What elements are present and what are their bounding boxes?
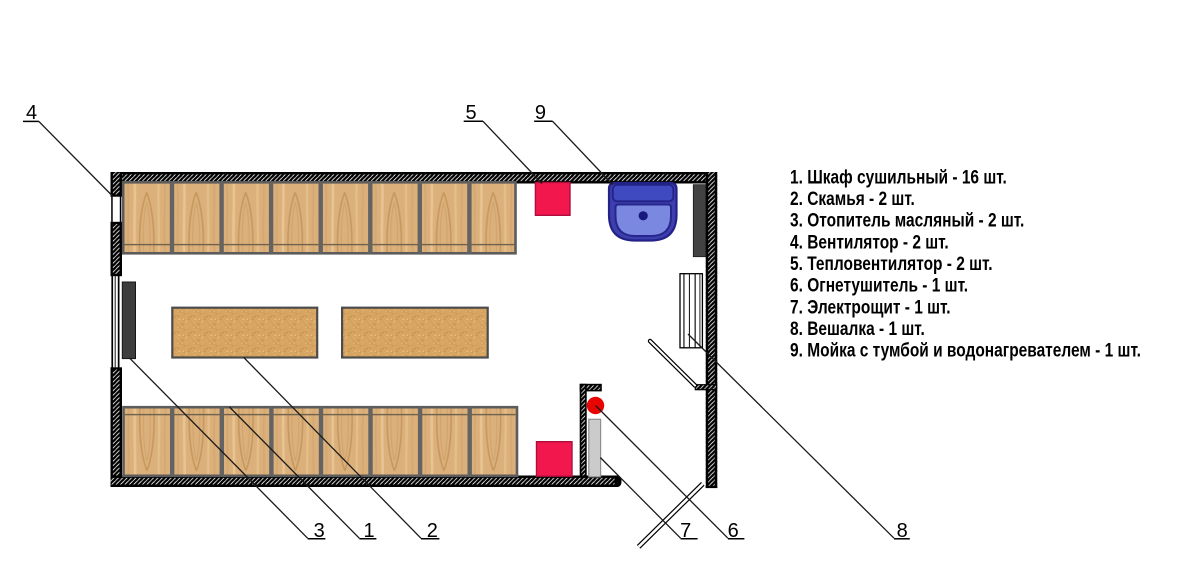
svg-text:4. Вентилятор - 2 шт.: 4. Вентилятор - 2 шт.	[790, 231, 949, 253]
svg-text:6. Огнетушитель - 1 шт.: 6. Огнетушитель - 1 шт.	[790, 274, 968, 296]
svg-text:8. Вешалка - 1 шт.: 8. Вешалка - 1 шт.	[790, 317, 925, 339]
svg-text:4: 4	[26, 102, 37, 124]
svg-text:3. Отопитель масляный - 2 шт.: 3. Отопитель масляный - 2 шт.	[790, 209, 1024, 231]
svg-text:7. Электрощит - 1 шт.: 7. Электрощит - 1 шт.	[790, 296, 951, 318]
svg-text:5. Тепловентилятор - 2 шт.: 5. Тепловентилятор - 2 шт.	[790, 252, 993, 274]
svg-text:1. Шкаф сушильный - 16 шт.: 1. Шкаф сушильный - 16 шт.	[790, 166, 1007, 188]
svg-text:9. Мойка с тумбой и водонагрев: 9. Мойка с тумбой и водонагревателем - 1…	[790, 339, 1141, 361]
svg-text:2. Скамья - 2 шт.: 2. Скамья - 2 шт.	[790, 187, 915, 209]
